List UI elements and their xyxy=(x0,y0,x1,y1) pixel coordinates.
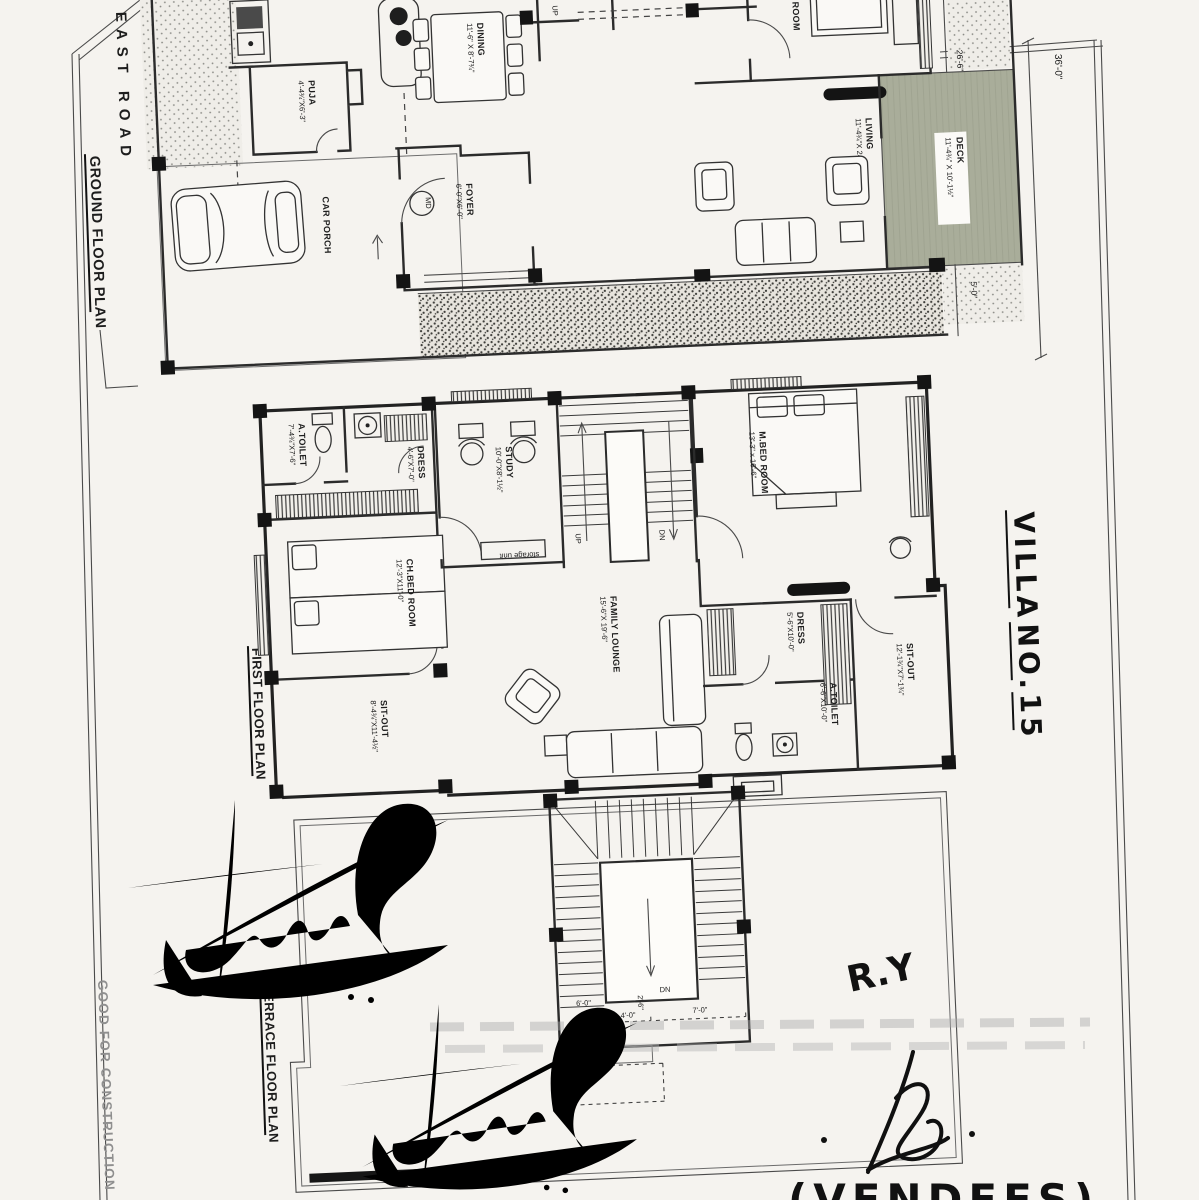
terrace-dn-label: DN xyxy=(659,985,670,994)
a-toilet-left-dim: 7'-4¾"X7'-6" xyxy=(286,424,297,466)
dining-label: DINING xyxy=(475,22,486,56)
bed-room-window xyxy=(916,0,932,68)
foyer: MD FOYER 6'-0"X6'-0" xyxy=(368,142,542,291)
side-margin-stipple-bottom xyxy=(942,263,1024,324)
mbed-door-arc xyxy=(697,514,743,560)
up-label: UP xyxy=(574,533,583,544)
car-porch: CAR PORCH xyxy=(169,156,334,272)
sit-out-left: SIT-OUT 8'-4¾"X11'-4½" xyxy=(369,700,391,753)
puja-label: PUJA xyxy=(306,80,317,106)
villa-no-15: VILLA NO. 15 xyxy=(1006,509,1048,741)
deck-label: DECK xyxy=(954,137,965,164)
signature-2 xyxy=(339,1004,637,1200)
dress-left-dim: 4'-6"X7'-0" xyxy=(406,446,417,482)
good-for-construction-stamp: GOOD FOR CONSTRUCTION xyxy=(95,980,117,1192)
initials-ry: R.Y xyxy=(843,946,919,1000)
foyer-label: FOYER xyxy=(464,183,475,216)
sitout-door-arc xyxy=(856,598,894,636)
first-floor-stairs: UP DN xyxy=(557,392,708,567)
car-porch-label: CAR PORCH xyxy=(320,196,332,254)
dress-left-label: DRESS xyxy=(416,446,427,479)
family-lounge: FAMILY LOUNGE 15'-6"X 19'-6" xyxy=(497,592,708,781)
mbed-console xyxy=(787,582,850,597)
east-road-label: EAST ROAD xyxy=(112,12,134,164)
bed-room-label: BED ROOM xyxy=(789,0,801,31)
puja-dim: 4'-4¾"X6'-3" xyxy=(296,80,307,122)
terrace-dim-b: 7'-0" xyxy=(692,1005,708,1015)
a-toilet-right-label: A.TOILET xyxy=(828,682,840,726)
mbed-window xyxy=(906,396,929,517)
dim-5-0: 5'-0" xyxy=(969,281,980,298)
dress-wardrobe xyxy=(384,414,427,442)
dim-26-6: 26'-6" xyxy=(955,50,966,72)
dn-label: DN xyxy=(657,529,666,540)
ground-plan-pointer xyxy=(100,330,138,388)
dining-area: DINING 11'-6" X 8'-7¾" xyxy=(413,11,525,104)
sit-out-right: SIT-OUT 12'-1¾"X7'-1¾" xyxy=(856,597,917,698)
sitout-right-label: SIT-OUT xyxy=(905,643,917,681)
study-chair xyxy=(458,423,486,465)
living-label: LIVING xyxy=(864,118,875,150)
study-door-arc xyxy=(440,516,482,558)
sitout-left-dim: 8'-4¾"X11'-4½" xyxy=(369,700,380,752)
floor-plan-drawing: EAST ROAD GROUND FLOOR PLAN FIRST FLOOR … xyxy=(0,0,1199,1200)
ground-floor-plan: DECK 11'-4¾" X 10'-1½" PUJA 4'-4¾"X6'-3" xyxy=(140,0,1026,375)
foyer-door-arc xyxy=(400,178,447,223)
dress-wardrobe-left xyxy=(707,609,736,676)
entry-arrow xyxy=(372,235,383,259)
chbed-dim: 12'-3"X11'-0" xyxy=(394,559,405,603)
m-bed-room: M.BED ROOM 13'-3" x 16'-6" xyxy=(691,382,935,606)
terrace-dim-c: 6'-0" xyxy=(576,998,592,1008)
no-word: NO. xyxy=(1011,623,1046,693)
a-toilet-right-dim: 6'-6"X10'-0" xyxy=(818,683,829,723)
ch-bed-room: CH.BED ROOM 12'-3"X11'-0" xyxy=(248,403,449,680)
side-margin-stipple-top xyxy=(944,0,1011,70)
a-toilet-left-label: A.TOILET xyxy=(296,423,308,467)
lounge-label: FAMILY LOUNGE xyxy=(608,596,621,673)
overall-dimension: 36'-0" xyxy=(1022,38,1063,360)
dress-door-arc xyxy=(741,655,770,684)
scanned-floor-plan-sheet: EAST ROAD GROUND FLOOR PLAN FIRST FLOOR … xyxy=(0,0,1199,1200)
living-room: LIVING 11'-4¾"X 24'-0" xyxy=(528,73,939,284)
stair-hall-top: UP xyxy=(519,0,758,61)
vendees-label: (VENDEES) xyxy=(788,1175,1099,1200)
terrace-dim-d: 2'-6" xyxy=(636,995,646,1011)
villa-number: 15 xyxy=(1013,693,1048,741)
deck-area: DECK 11'-4¾" X 10'-1½" xyxy=(879,69,1022,268)
dress-right-dim: 5'-6"X10'-0" xyxy=(785,612,796,652)
first-floor-plan: A.TOILET 7'-4¾"X7'-6" DRESS 4'-6"X7'-0" xyxy=(247,370,957,817)
lounge-dim: 15'-6"X 19'-6" xyxy=(598,596,609,643)
sitout-right-dim: 12'-1¾"X7'-1¾" xyxy=(895,643,906,696)
a-toilet-right: A.TOILET 6'-6"X10'-0" xyxy=(729,682,843,797)
mbed-dim: 13'-3" x 16'-6" xyxy=(747,431,758,478)
foyer-dim: 6'-0"X6'-0" xyxy=(454,184,465,220)
bed-room-door-arc xyxy=(748,18,790,60)
villa-word: VILLA xyxy=(1007,511,1044,622)
planting-band xyxy=(418,271,944,358)
puja-door-arc xyxy=(316,129,339,152)
lounge-armchair xyxy=(502,666,564,728)
up-label-ground: UP xyxy=(550,5,559,16)
car xyxy=(170,180,306,272)
storage-unit-label: storage unit xyxy=(499,550,540,561)
dim-36-0: 36'-0" xyxy=(1052,54,1063,80)
tv-console xyxy=(823,86,886,101)
sitout-left-label: SIT-OUT xyxy=(379,700,391,738)
study-dim: 10'-0"X8'-1½" xyxy=(494,447,505,494)
dress-left: DRESS 4'-6"X7'-0" xyxy=(354,411,429,485)
terrace-dim-a: 4'-0" xyxy=(620,1010,636,1020)
study-label: STUDY xyxy=(504,446,515,478)
dress-right-label: DRESS xyxy=(795,612,806,645)
scan-smudge xyxy=(430,1022,1090,1049)
signature-1 xyxy=(128,800,448,1012)
study: STUDY 10'-0"X8'-1½" storage unit xyxy=(435,398,564,567)
a-toilet-left: A.TOILET 7'-4¾"X7'-6" xyxy=(260,407,347,485)
door-mark: MD xyxy=(424,197,434,210)
puja-room: PUJA 4'-4¾"X6'-3" xyxy=(230,62,365,156)
